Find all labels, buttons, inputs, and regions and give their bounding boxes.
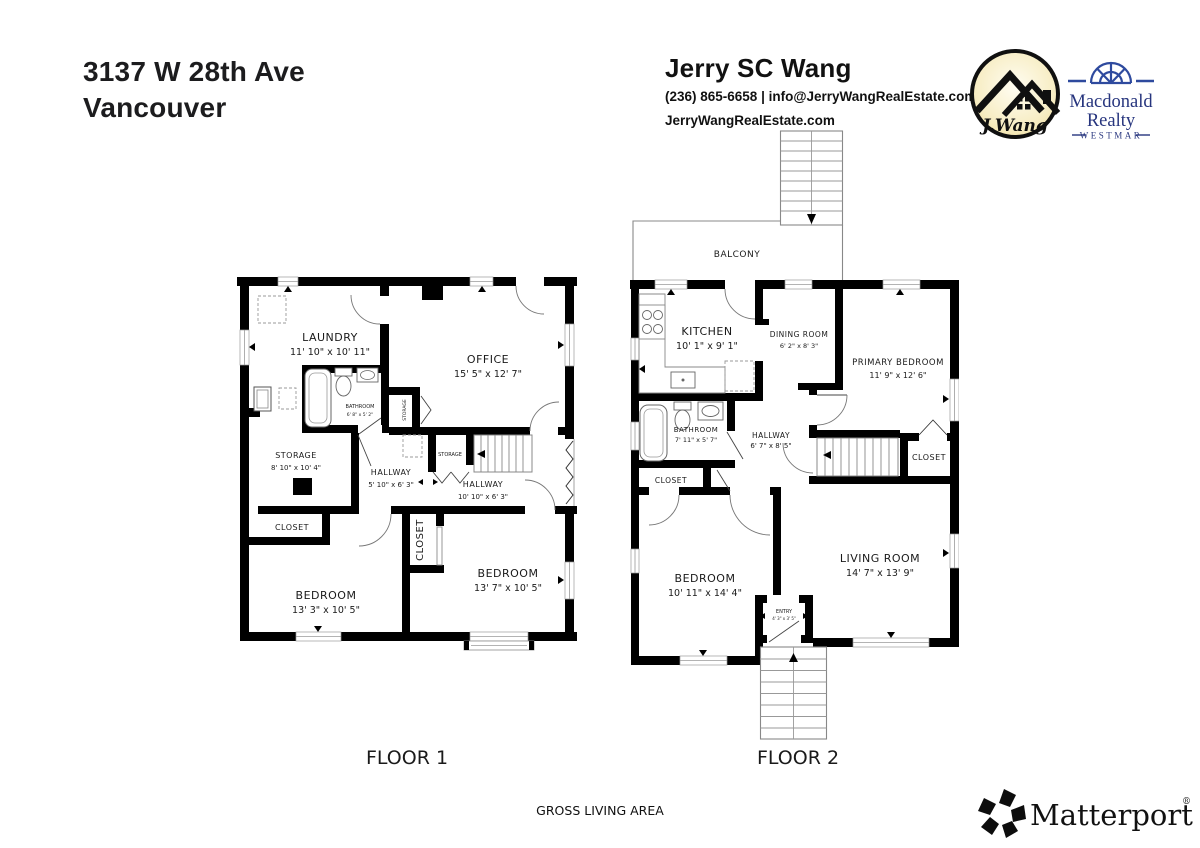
room-label-hallway-a: HALLWAY — [371, 468, 411, 477]
room-dims-laundry: 11' 10" x 10' 11" — [290, 347, 370, 358]
matterport-registered-mark: ® — [1182, 797, 1191, 807]
floor1-plan: LAUNDRY 11' 10" x 10' 11" OFFICE 15' 5" … — [234, 269, 582, 661]
floor2-exterior-stairs-bottom — [761, 647, 827, 739]
room-label-closet2a: CLOSET — [655, 476, 687, 485]
room-dims-bedroom2: 10' 11" x 14' 4" — [668, 588, 742, 599]
furnace — [293, 478, 312, 495]
floorplan-page: 3137 W 28th Ave Vancouver Jerry SC Wang … — [0, 0, 1200, 848]
room-label-closet-b: CLOSET — [415, 519, 426, 561]
macdonald-name: Macdonald — [1069, 92, 1153, 112]
room-label-bedroom-b: BEDROOM — [478, 567, 539, 580]
room-label-dining: DINING ROOM — [770, 330, 829, 339]
room-dims-living: 14' 7" x 13' 9" — [846, 568, 914, 579]
room-dims-primary: 11' 9" x 12' 6" — [869, 371, 926, 380]
room-dims-hallway-b: 10' 10" x 6' 3" — [458, 493, 508, 501]
room-label-closet2b: CLOSET — [912, 453, 946, 462]
room-label-bathroom1: BATHROOM — [346, 404, 375, 410]
room-label-bedroom2: BEDROOM — [675, 572, 736, 585]
room-label-storage-room: STORAGE — [275, 451, 317, 460]
room-label-primary: PRIMARY BEDROOM — [852, 358, 944, 368]
floor2-exterior-stairs-top — [781, 131, 843, 225]
floor2-staircase — [817, 438, 898, 476]
floor2-caption: FLOOR 2 — [728, 747, 868, 769]
jwang-logo-icon: J.Wang — [967, 47, 1063, 143]
stove — [639, 305, 665, 339]
room-dims-hallway-a: 5' 10" x 6' 3" — [368, 481, 414, 489]
floor1-staircase — [474, 435, 532, 472]
room-dims-entry: 4' 3" x 3' 5" — [772, 616, 796, 621]
macdonald-arch-icon — [1068, 63, 1154, 83]
room-label-office: OFFICE — [467, 353, 509, 366]
agent-name: Jerry SC Wang — [665, 55, 976, 82]
room-dims-bedroom-b: 13' 7" x 10' 5" — [474, 583, 542, 594]
toilet — [335, 368, 352, 376]
room-dims-dining: 6' 2" x 8' 3" — [780, 342, 818, 350]
room-label-bedroom-a: BEDROOM — [296, 589, 357, 602]
toilet2 — [674, 402, 691, 410]
room-label-laundry: LAUNDRY — [302, 331, 358, 344]
property-address: 3137 W 28th Ave Vancouver — [83, 54, 305, 126]
room-label-bathroom2: BATHROOM — [674, 426, 719, 434]
agent-contact: (236) 865-6658 | info@JerryWangRealEstat… — [665, 89, 976, 104]
room-label-entry: ENTRY — [776, 609, 793, 615]
floor1-bay-window — [464, 641, 534, 650]
macdonald-realty: Realty — [1087, 111, 1136, 131]
room-label-living: LIVING ROOM — [840, 552, 920, 565]
matterport-logo: Matterport ® — [976, 784, 1194, 846]
room-dims-bathroom2: 7' 11" x 5' 7" — [675, 436, 717, 444]
laundry-sink — [254, 387, 271, 411]
room-dims-bathroom1: 6' 8" x 5' 2" — [347, 412, 373, 418]
agent-website: JerryWangRealEstate.com — [665, 113, 976, 128]
room-label-closet-a: CLOSET — [275, 523, 309, 532]
macdonald-logo-icon: Macdonald Realty WESTMAR — [1066, 50, 1166, 142]
agent-block: Jerry SC Wang (236) 865-6658 | info@Jerr… — [665, 55, 976, 128]
room-dims-kitchen: 10' 1" x 9' 1" — [676, 341, 738, 352]
room-dims-office: 15' 5" x 12' 7" — [454, 369, 522, 380]
address-line2: Vancouver — [83, 90, 305, 126]
room-dims-storage-room: 8' 10" x 10' 4" — [271, 464, 321, 472]
room-label-balcony: BALCONY — [714, 250, 760, 260]
matterport-wordmark: Matterport — [1030, 798, 1193, 832]
room-dims-hallway2: 6' 7" x 8' 5" — [750, 442, 791, 450]
room-label-hallway2: HALLWAY — [752, 431, 790, 440]
jwang-logo-label: J.Wang — [979, 116, 1048, 136]
floor1-bifold-bay — [565, 439, 574, 506]
area-summary: GROSS LIVING AREA FLOOR 1 884 sq.ft. FLO… — [300, 775, 900, 848]
matterport-icon — [978, 789, 1026, 838]
floor1-caption: FLOOR 1 — [337, 747, 477, 769]
address-line1: 3137 W 28th Ave — [83, 54, 305, 90]
room-label-hallway-b: HALLWAY — [463, 480, 503, 489]
macdonald-logo: Macdonald Realty WESTMAR — [1066, 50, 1166, 146]
jwang-logo: J.Wang — [967, 47, 1063, 147]
room-label-storage-closet: STORAGE — [402, 399, 408, 421]
room-dims-bedroom-a: 13' 3" x 10' 5" — [292, 605, 360, 616]
fridge — [725, 361, 754, 391]
room-label-kitchen: KITCHEN — [681, 325, 732, 338]
floor2-plan: BALCONY KITCHEN 10' 1" x 9' 1" DINING RO… — [627, 129, 959, 741]
matterport-logo-svg: Matterport ® — [976, 784, 1194, 842]
room-label-storage-stairs: STORAGE — [438, 452, 462, 458]
macdonald-sub: WESTMAR — [1080, 131, 1143, 141]
gross-living-area-title: GROSS LIVING AREA — [300, 804, 900, 818]
